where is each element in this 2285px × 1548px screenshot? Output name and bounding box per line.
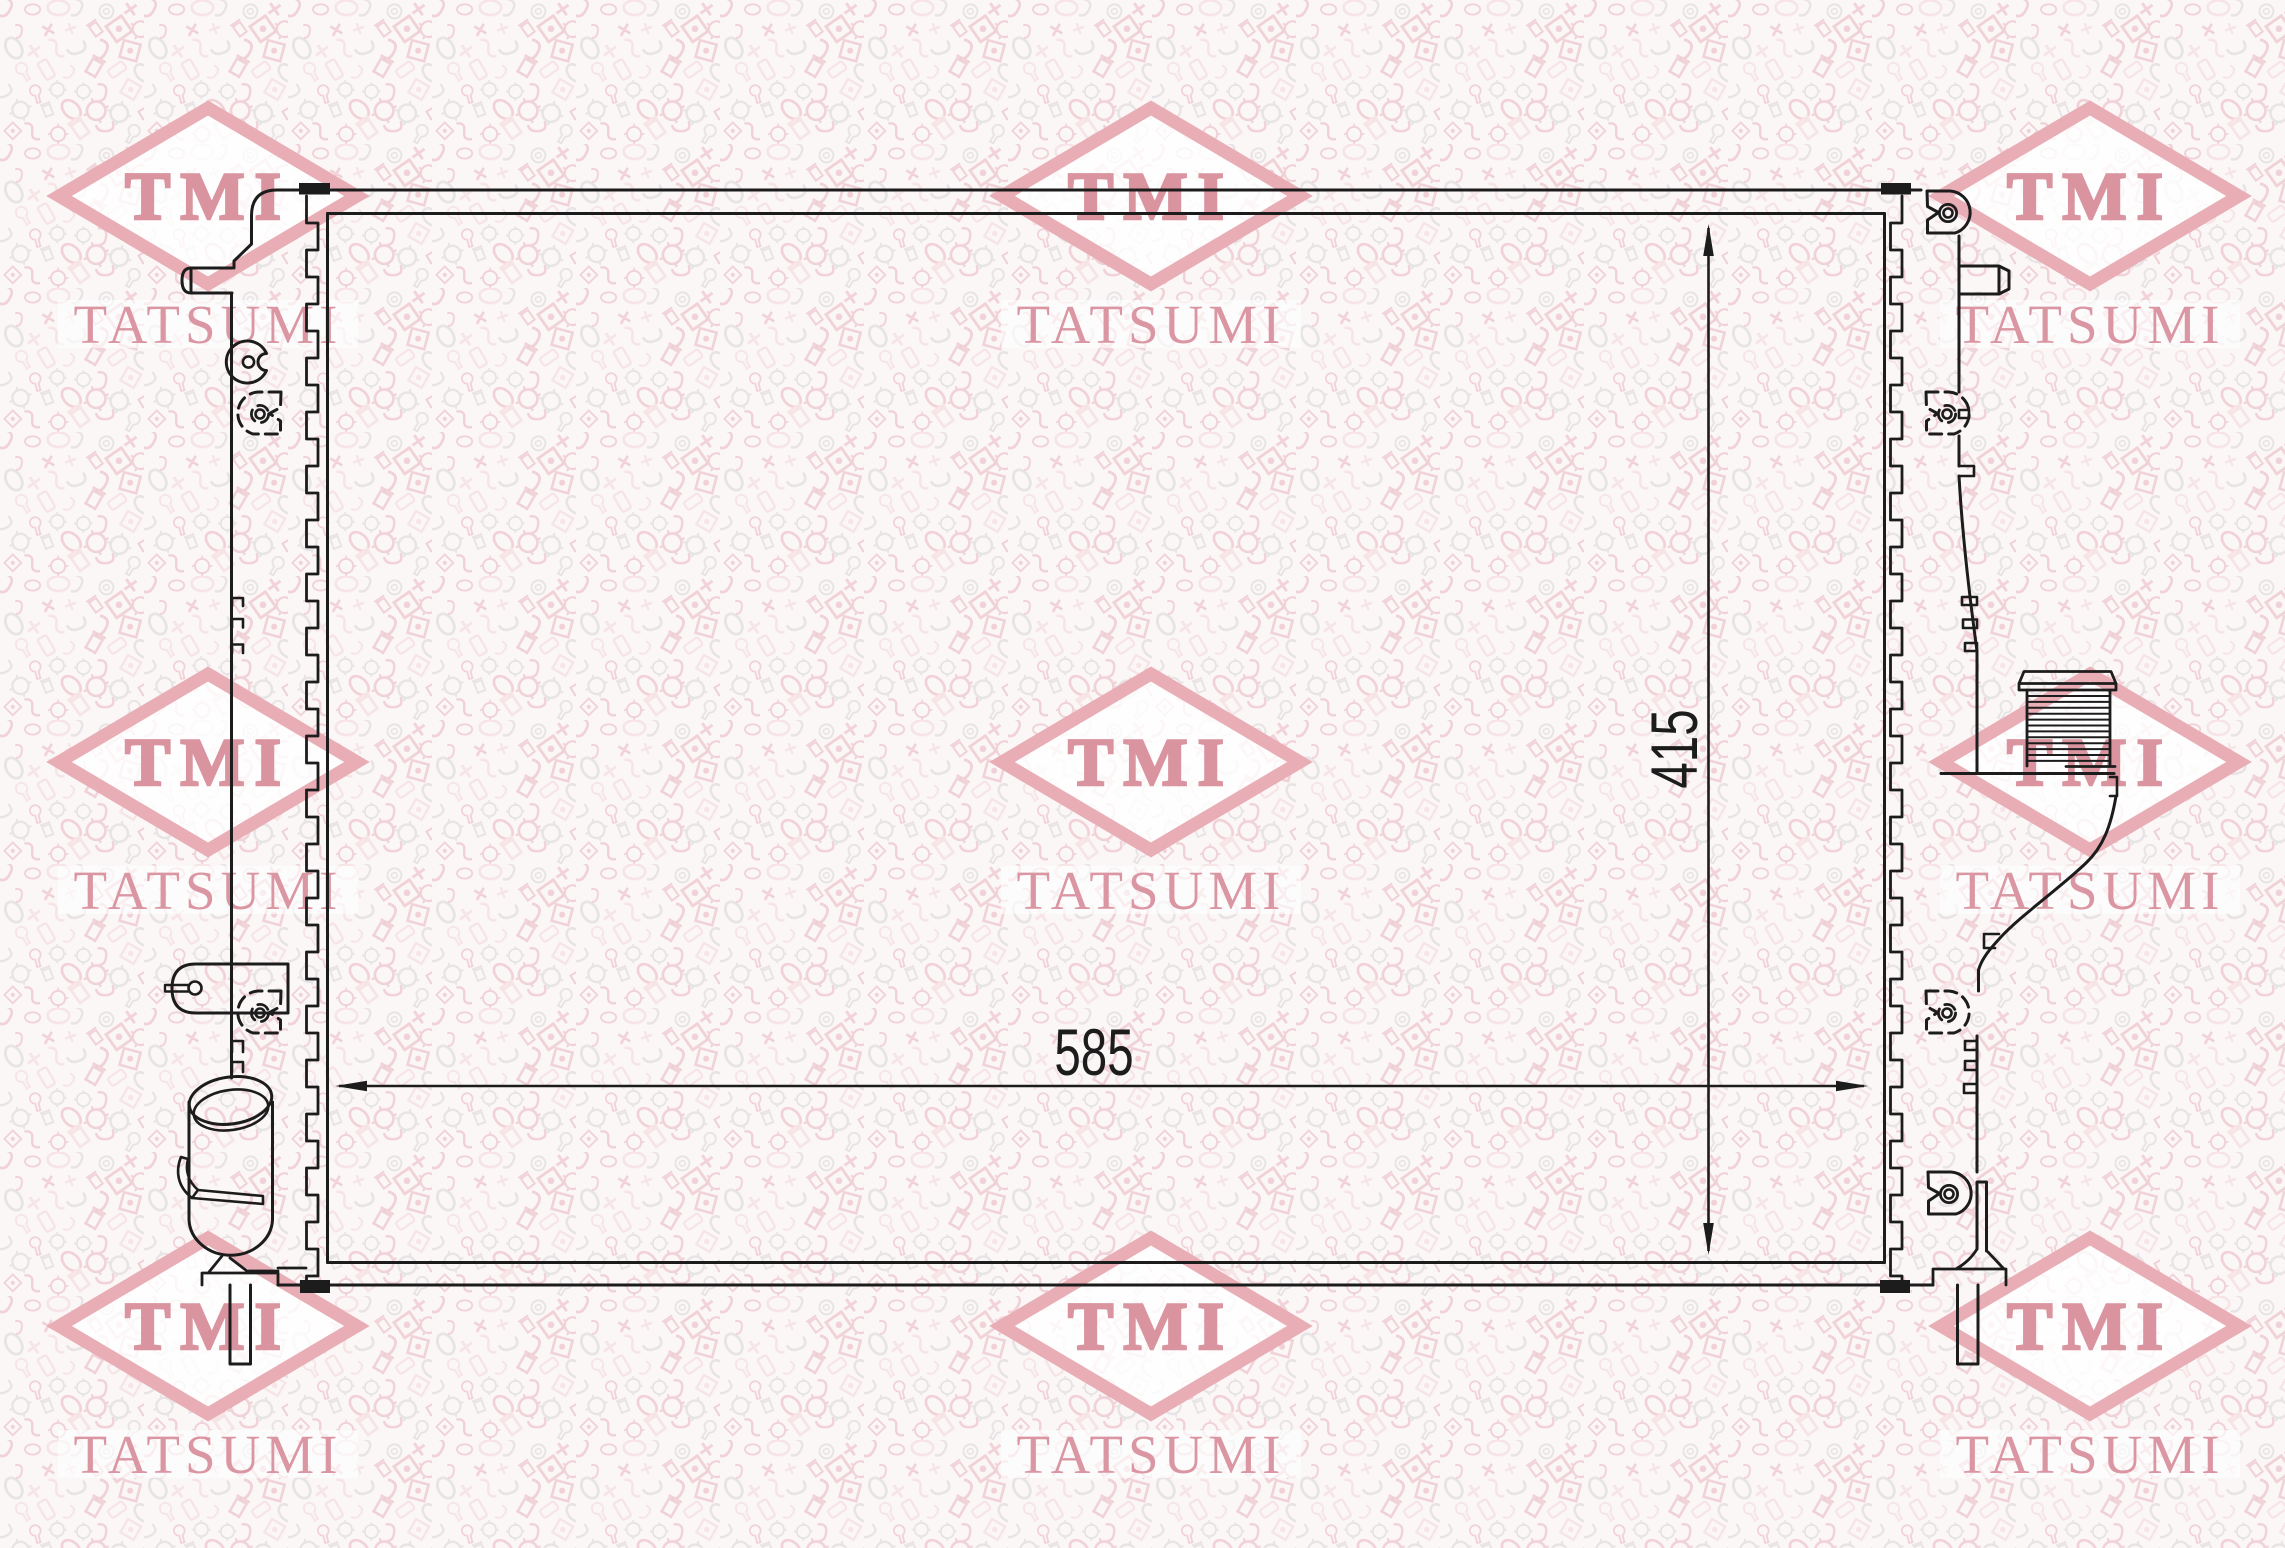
svg-text:585: 585 — [1054, 1016, 1133, 1089]
svg-text:415: 415 — [1638, 709, 1711, 788]
